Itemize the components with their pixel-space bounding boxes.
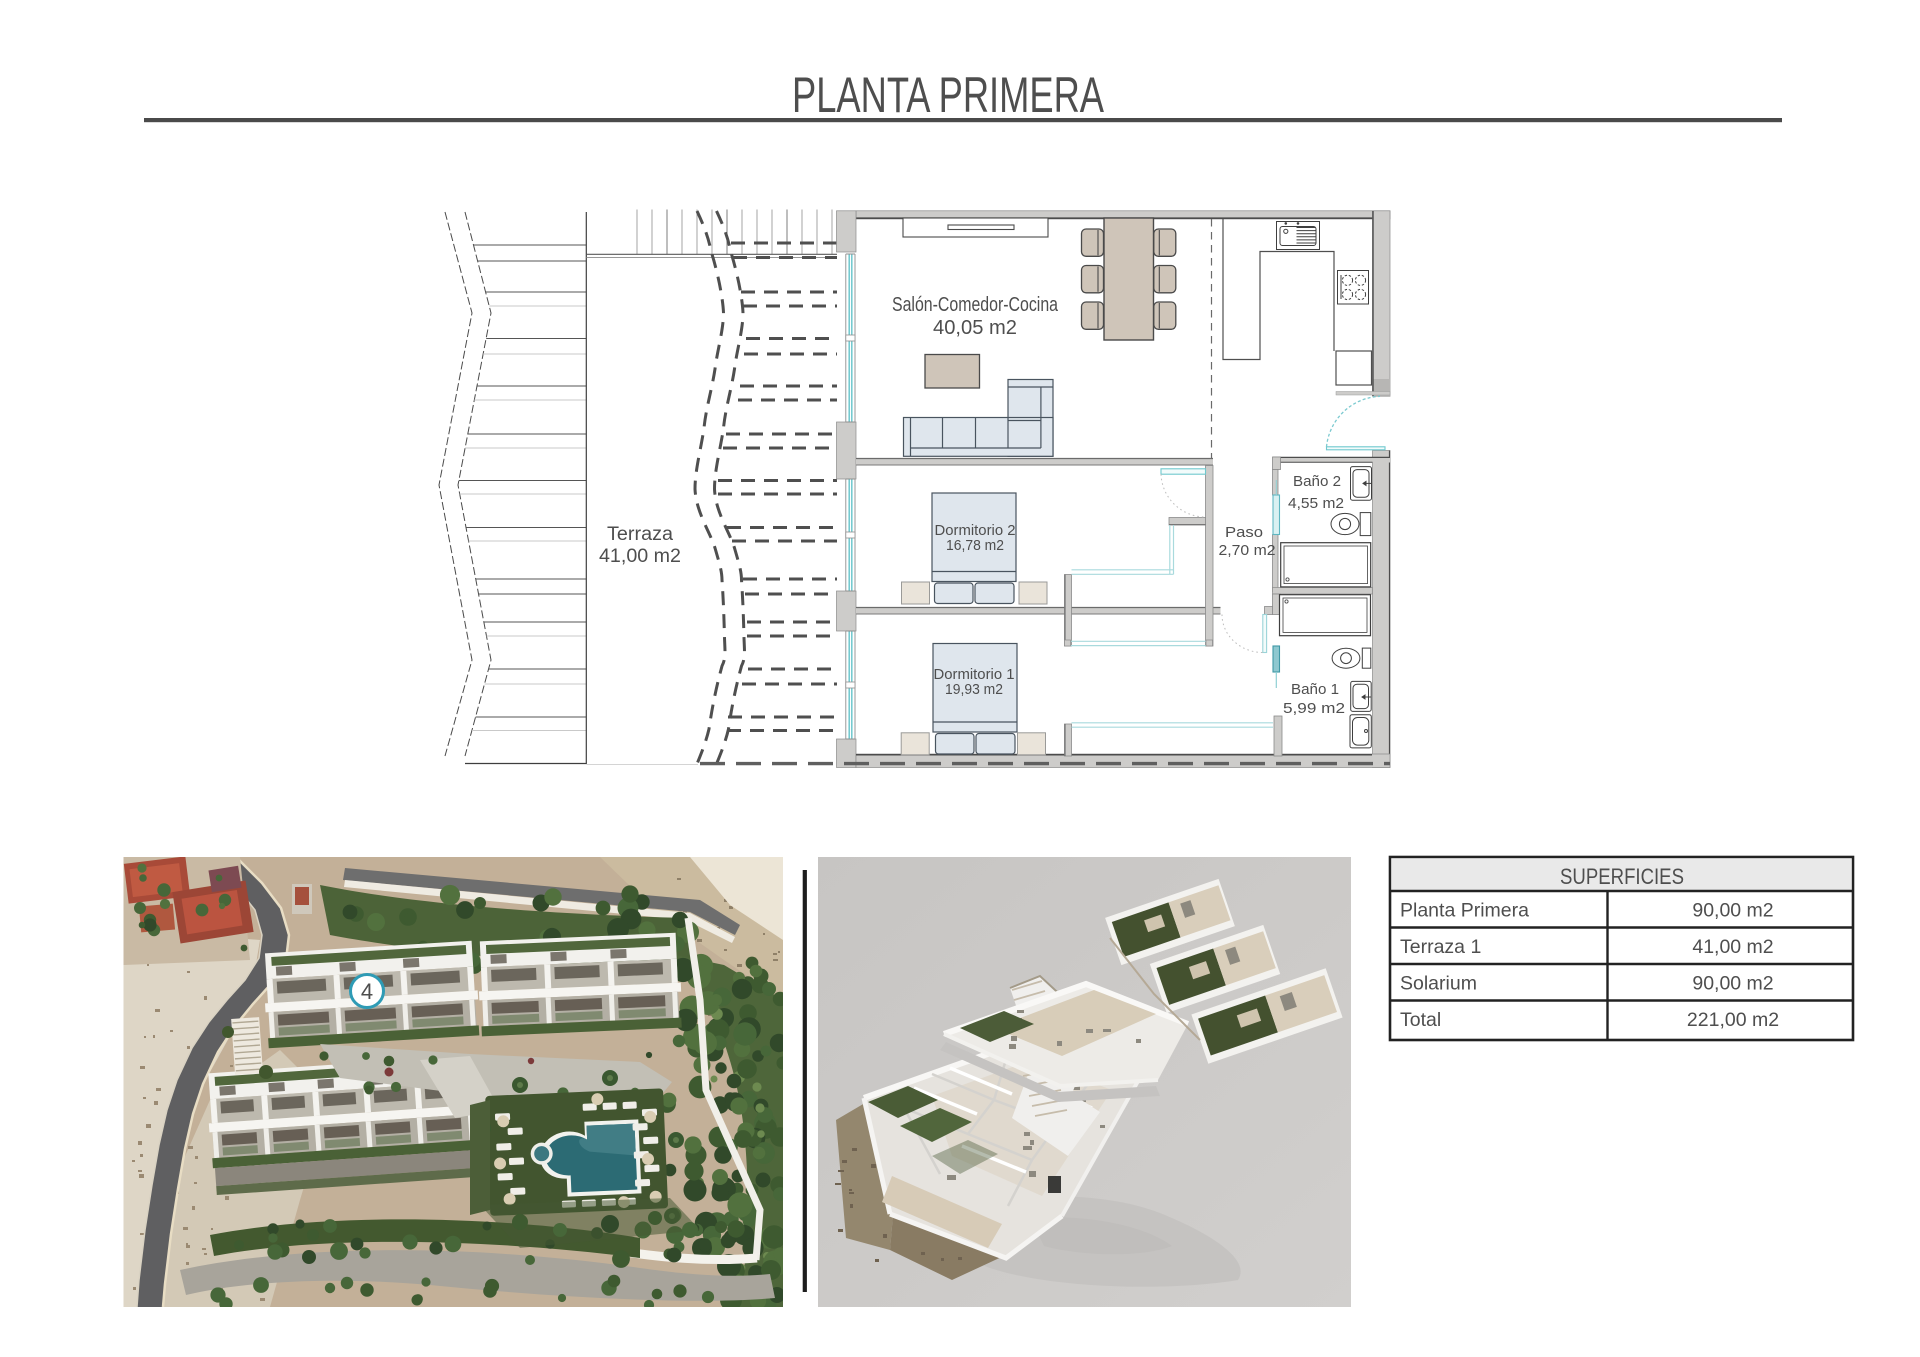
svg-text:40,05 m2: 40,05 m2 [933, 317, 1017, 339]
svg-text:Total: Total [1400, 1009, 1441, 1031]
svg-text:Dormitorio 2: Dormitorio 2 [935, 523, 1016, 539]
svg-text:Paso: Paso [1225, 524, 1263, 541]
svg-text:Solarium: Solarium [1400, 973, 1477, 995]
svg-text:PLANTA PRIMERA: PLANTA PRIMERA [792, 67, 1104, 123]
svg-text:16,78 m2: 16,78 m2 [946, 538, 1004, 554]
svg-text:Baño 1: Baño 1 [1291, 681, 1339, 698]
svg-text:90,00 m2: 90,00 m2 [1692, 973, 1773, 995]
svg-text:41,00 m2: 41,00 m2 [599, 546, 681, 567]
svg-text:Planta Primera: Planta Primera [1400, 900, 1529, 922]
svg-text:90,00 m2: 90,00 m2 [1692, 900, 1773, 922]
svg-text:2,70 m2: 2,70 m2 [1219, 542, 1276, 559]
svg-text:19,93 m2: 19,93 m2 [945, 682, 1003, 698]
svg-text:4: 4 [361, 979, 373, 1004]
svg-text:Terraza: Terraza [607, 524, 673, 545]
svg-text:Salón-Comedor-Cocina: Salón-Comedor-Cocina [892, 294, 1059, 316]
svg-text:4,55 m2: 4,55 m2 [1288, 495, 1344, 512]
svg-text:Dormitorio 1: Dormitorio 1 [934, 667, 1015, 683]
svg-text:41,00 m2: 41,00 m2 [1692, 936, 1773, 958]
svg-text:Baño 2: Baño 2 [1293, 473, 1341, 490]
svg-text:221,00 m2: 221,00 m2 [1687, 1009, 1779, 1031]
svg-text:Terraza 1: Terraza 1 [1400, 936, 1481, 958]
svg-text:5,99 m2: 5,99 m2 [1283, 700, 1345, 717]
svg-text:SUPERFICIES: SUPERFICIES [1560, 864, 1684, 889]
